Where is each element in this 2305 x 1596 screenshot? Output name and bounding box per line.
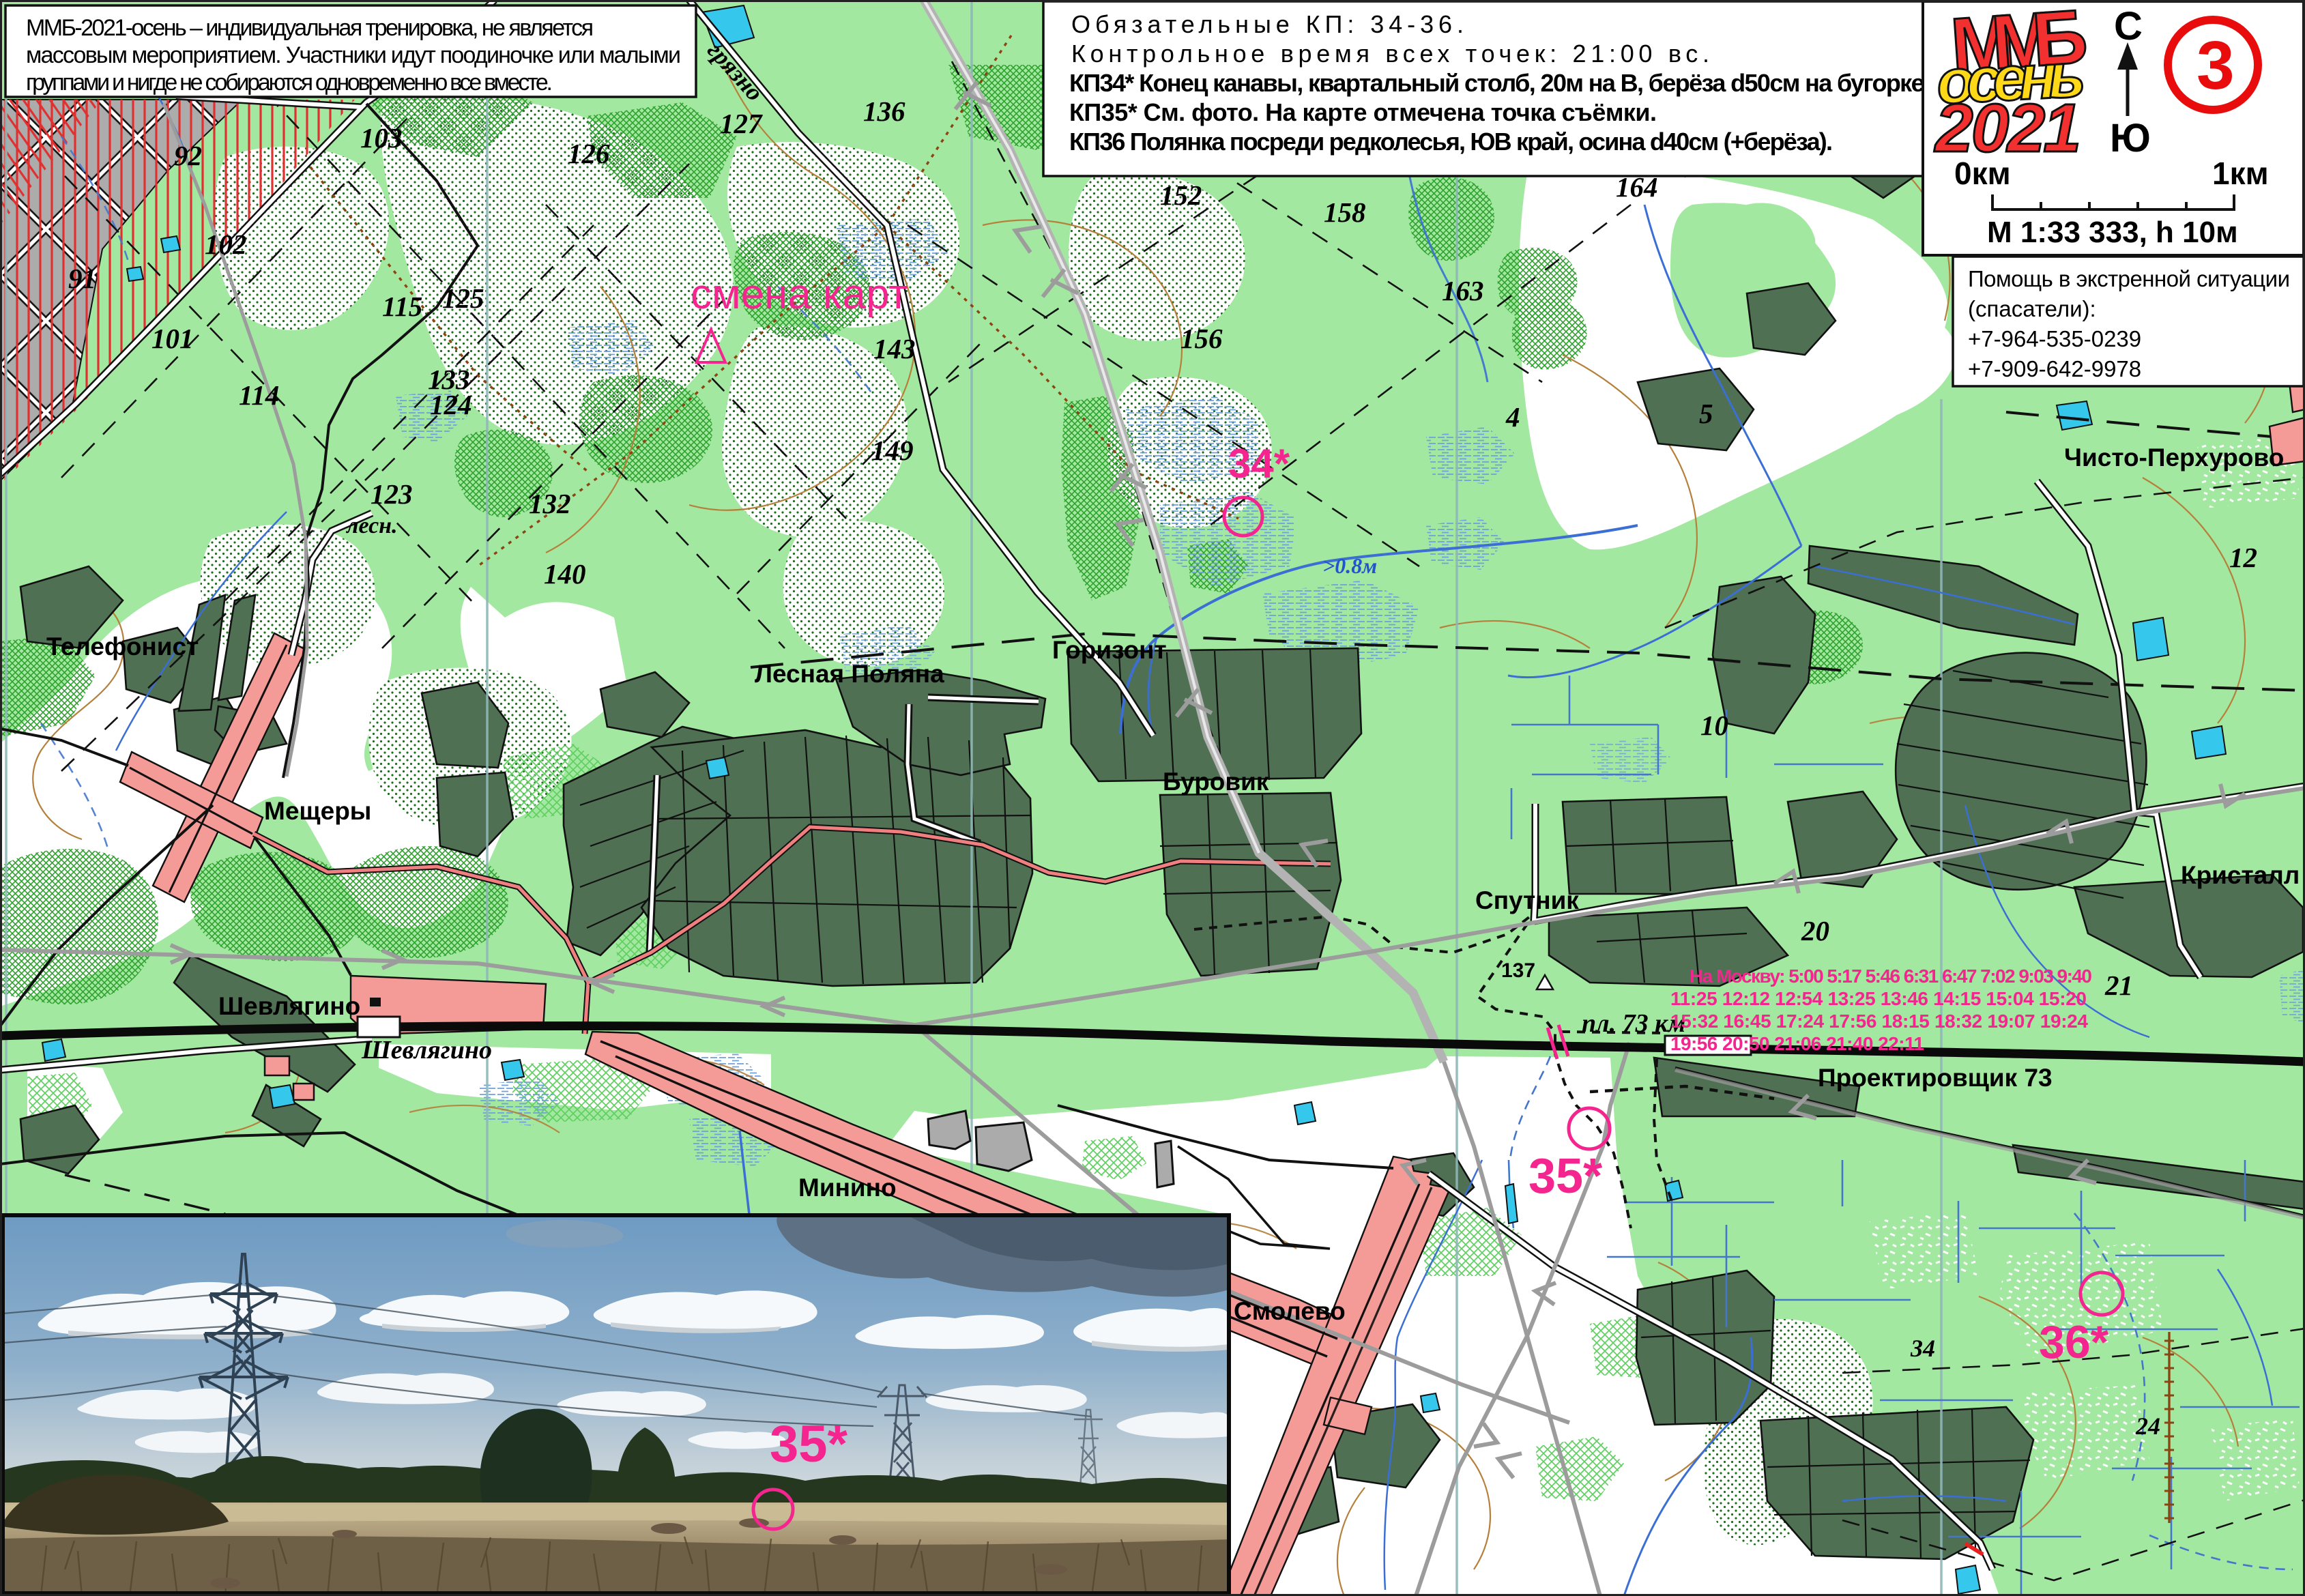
svg-text:91: 91 (68, 263, 96, 294)
svg-text:137: 137 (1501, 959, 1535, 982)
svg-text:12: 12 (2229, 542, 2257, 573)
svg-text:(спасатели):: (спасатели): (1968, 296, 2096, 321)
svg-text:С: С (2114, 4, 2143, 48)
svg-text:Помощь в экстренной ситуации: Помощь в экстренной ситуации (1968, 266, 2290, 291)
svg-text:М 1:33 333, h 10м: М 1:33 333, h 10м (1987, 216, 2238, 249)
svg-text:15:32 16:45 17:24 17:56 18:15: 15:32 16:45 17:24 17:56 18:15 18:32 19:0… (1670, 1011, 2088, 1032)
svg-text:19:56 20:50 21:06 21:40 22:11: 19:56 20:50 21:06 21:40 22:11 (1670, 1033, 1924, 1054)
svg-text:36*: 36* (2039, 1316, 2109, 1368)
svg-text:115: 115 (382, 291, 422, 322)
svg-text:127: 127 (720, 108, 763, 139)
svg-text:10: 10 (1700, 710, 1728, 741)
svg-text:массовым мероприятием. Участни: массовым мероприятием. Участники идут по… (26, 42, 681, 68)
svg-text:158: 158 (1324, 197, 1366, 228)
svg-text:ММБ-2021-осень – индивидуальна: ММБ-2021-осень – индивидуальная трениров… (26, 15, 594, 41)
svg-text:КП36 Полянка посреди редколес: КП36 Полянка посреди редколесья, ЮВ край… (1069, 128, 1833, 156)
svg-text:126: 126 (568, 138, 610, 169)
svg-text:149: 149 (871, 435, 914, 466)
svg-text:КП35* См. фото. На карте отмеч: КП35* См. фото. На карте отмечена точка … (1069, 98, 1657, 126)
svg-text:103: 103 (360, 122, 403, 154)
svg-text:КП34* Конец канавы, квартальны: КП34* Конец канавы, квартальный столб, 2… (1069, 69, 1930, 97)
svg-text:Шевлягино: Шевлягино (361, 1036, 492, 1064)
svg-text:Спутник: Спутник (1475, 886, 1579, 914)
svg-text:34*: 34* (1228, 441, 1290, 487)
svg-text:4: 4 (1505, 401, 1520, 433)
svg-text:132: 132 (529, 488, 571, 519)
svg-text:102: 102 (205, 229, 247, 260)
svg-text:11:25 12:12 12:54 13:25 13:46: 11:25 12:12 12:54 13:25 13:46 14:15 15:0… (1670, 988, 2087, 1009)
svg-text:20: 20 (1801, 915, 1829, 946)
svg-text:101: 101 (151, 323, 194, 354)
svg-text:+7-964-535-0239: +7-964-535-0239 (1968, 326, 2141, 351)
svg-text:133: 133 (428, 364, 470, 395)
svg-text:На Москву: 5:00 5:17 5:46 6:31: На Москву: 5:00 5:17 5:46 6:31 6:47 7:02… (1690, 966, 2092, 987)
svg-text:92: 92 (174, 140, 202, 171)
svg-text:Лесная Поляна: Лесная Поляна (755, 660, 944, 688)
svg-text:114: 114 (239, 379, 279, 411)
svg-text:Смолево: Смолево (1234, 1297, 1346, 1325)
svg-text:Буровик: Буровик (1163, 768, 1269, 796)
svg-text:5: 5 (1699, 398, 1713, 429)
svg-text:Минино: Минино (798, 1174, 897, 1202)
svg-text:152: 152 (1160, 179, 1202, 211)
svg-text:24: 24 (2135, 1412, 2160, 1440)
svg-text:136: 136 (863, 96, 905, 127)
svg-text:группами и нигде не собираются: группами и нигде не собираются одновреме… (26, 70, 553, 96)
svg-text:>0.8м: >0.8м (1322, 553, 1377, 578)
svg-text:35*: 35* (1528, 1149, 1602, 1204)
svg-text:143: 143 (873, 333, 916, 364)
svg-text:21: 21 (2104, 970, 2133, 1001)
svg-text:0км: 0км (1954, 156, 2011, 191)
svg-text:Кристалл: Кристалл (2181, 861, 2300, 889)
svg-text:лесн.: лесн. (345, 513, 398, 538)
svg-text:Телефонист: Телефонист (46, 633, 199, 661)
svg-text:Ю: Ю (2110, 116, 2151, 160)
svg-text:1км: 1км (2212, 156, 2269, 191)
svg-text:Чисто-Перхурово: Чисто-Перхурово (2064, 444, 2284, 471)
svg-text:34: 34 (1910, 1335, 1935, 1362)
svg-text:Проектировщик 73: Проектировщик 73 (1818, 1064, 2053, 1092)
svg-text:смена карт: смена карт (691, 271, 908, 318)
svg-text:156: 156 (1180, 323, 1223, 354)
svg-text:Контрольное время всех точек:: Контрольное время всех точек: 21:00 вс. (1071, 40, 1709, 68)
svg-text:Шевлягино: Шевлягино (218, 992, 360, 1020)
svg-text:+7-909-642-9978: +7-909-642-9978 (1968, 356, 2141, 381)
svg-text:125: 125 (442, 282, 484, 314)
svg-text:35*: 35* (770, 1415, 848, 1473)
svg-text:140: 140 (544, 558, 586, 590)
svg-text:3: 3 (2197, 27, 2235, 104)
svg-text:123: 123 (371, 478, 413, 510)
svg-text:Горизонт: Горизонт (1052, 636, 1167, 664)
svg-text:Мещеры: Мещеры (264, 797, 371, 825)
svg-text:163: 163 (1442, 275, 1484, 306)
